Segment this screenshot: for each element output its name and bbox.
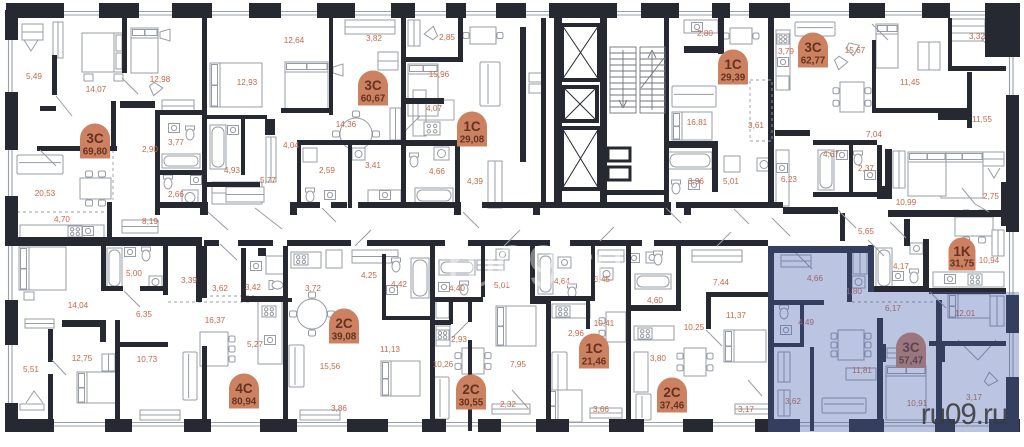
svg-text:10,94: 10,94 (979, 256, 1000, 265)
svg-text:4,25: 4,25 (361, 271, 377, 280)
svg-text:4,70: 4,70 (54, 215, 70, 224)
svg-text:6,23: 6,23 (781, 175, 797, 184)
svg-text:3,96: 3,96 (688, 177, 704, 186)
svg-text:ru09.ru: ru09.ru (447, 234, 624, 299)
svg-text:21,46: 21,46 (582, 356, 607, 367)
svg-text:12,93: 12,93 (237, 78, 258, 87)
svg-text:2,75: 2,75 (983, 192, 999, 201)
svg-text:16,81: 16,81 (687, 118, 708, 127)
svg-text:6,35: 6,35 (136, 310, 152, 319)
svg-text:3,80: 3,80 (650, 354, 666, 363)
svg-text:11,13: 11,13 (380, 345, 400, 354)
svg-text:80,94: 80,94 (232, 396, 257, 407)
svg-text:4C: 4C (235, 381, 253, 396)
svg-text:4,60: 4,60 (647, 296, 663, 305)
svg-text:11,37: 11,37 (726, 311, 746, 320)
svg-text:2,37: 2,37 (858, 164, 874, 173)
svg-text:31,75: 31,75 (950, 259, 975, 270)
svg-text:3C: 3C (86, 131, 104, 146)
svg-text:15,67: 15,67 (845, 46, 866, 55)
svg-text:5,27: 5,27 (247, 340, 263, 349)
svg-text:4,66: 4,66 (429, 167, 445, 176)
svg-text:3,61: 3,61 (748, 121, 764, 130)
svg-text:4,42: 4,42 (391, 280, 407, 289)
svg-text:2C: 2C (462, 382, 480, 397)
svg-text:2,90: 2,90 (142, 145, 158, 154)
svg-text:3,17: 3,17 (738, 405, 754, 414)
svg-text:7,04: 7,04 (866, 130, 882, 139)
svg-text:1C: 1C (585, 341, 603, 356)
svg-text:20,53: 20,53 (35, 189, 56, 198)
svg-text:16,37: 16,37 (205, 316, 226, 325)
svg-text:39,08: 39,08 (332, 331, 357, 342)
svg-text:3,66: 3,66 (593, 405, 609, 414)
svg-text:37,46: 37,46 (660, 400, 685, 411)
svg-text:10,41: 10,41 (594, 319, 615, 328)
svg-text:4,07: 4,07 (426, 104, 442, 113)
svg-text:ru09.ru: ru09.ru (921, 398, 1007, 431)
svg-text:5,49: 5,49 (26, 72, 42, 81)
svg-text:4,93: 4,93 (224, 166, 240, 175)
svg-text:12,98: 12,98 (150, 75, 171, 84)
svg-text:14,36: 14,36 (336, 120, 357, 129)
svg-text:7,95: 7,95 (510, 360, 526, 369)
svg-text:5,00: 5,00 (126, 269, 142, 278)
svg-text:3,82: 3,82 (366, 34, 382, 43)
svg-text:62,77: 62,77 (801, 55, 826, 66)
svg-text:60,67: 60,67 (361, 93, 386, 104)
svg-text:2,96: 2,96 (568, 329, 584, 338)
svg-text:11,55: 11,55 (972, 115, 992, 124)
svg-text:3,42: 3,42 (245, 283, 261, 292)
svg-text:30,55: 30,55 (459, 397, 484, 408)
svg-text:29,08: 29,08 (460, 134, 485, 145)
svg-text:3C: 3C (804, 40, 822, 55)
svg-text:2,85: 2,85 (439, 33, 455, 42)
svg-text:3,72: 3,72 (305, 284, 321, 293)
svg-text:4,17: 4,17 (893, 262, 909, 271)
svg-text:3,79: 3,79 (778, 47, 794, 56)
svg-text:3,39: 3,39 (181, 276, 197, 285)
svg-text:12,64: 12,64 (284, 36, 305, 45)
svg-text:14,07: 14,07 (86, 85, 107, 94)
svg-text:10,25: 10,25 (684, 323, 705, 332)
svg-text:5,01: 5,01 (723, 177, 739, 186)
svg-text:7,44: 7,44 (713, 278, 729, 287)
svg-text:1C: 1C (724, 57, 742, 72)
svg-text:3C: 3C (364, 78, 382, 93)
svg-text:4,04: 4,04 (283, 141, 299, 150)
svg-text:10,26: 10,26 (433, 360, 454, 369)
svg-text:5,51: 5,51 (23, 365, 39, 374)
svg-text:1K: 1K (953, 244, 971, 259)
svg-text:2,80: 2,80 (697, 29, 713, 38)
svg-text:4,39: 4,39 (467, 177, 483, 186)
svg-text:2,66: 2,66 (168, 190, 184, 199)
svg-text:5,77: 5,77 (260, 176, 276, 185)
svg-text:29,39: 29,39 (721, 72, 746, 83)
svg-text:3,86: 3,86 (331, 404, 347, 413)
svg-text:11,45: 11,45 (900, 78, 920, 87)
svg-text:2,93: 2,93 (451, 335, 467, 344)
svg-text:3,32: 3,32 (969, 32, 985, 41)
svg-text:2C: 2C (335, 316, 353, 331)
svg-text:8,19: 8,19 (142, 217, 158, 226)
svg-text:12,75: 12,75 (72, 354, 93, 363)
svg-text:5,65: 5,65 (858, 227, 874, 236)
svg-text:14,04: 14,04 (68, 301, 89, 310)
svg-text:4,67: 4,67 (823, 150, 839, 159)
svg-text:15,56: 15,56 (320, 362, 341, 371)
svg-text:3,77: 3,77 (168, 138, 184, 147)
svg-text:3,41: 3,41 (365, 161, 381, 170)
svg-text:15,96: 15,96 (429, 70, 450, 79)
svg-text:3,62: 3,62 (212, 284, 228, 293)
svg-text:10,99: 10,99 (896, 198, 917, 207)
svg-text:69,80: 69,80 (83, 146, 108, 157)
svg-text:2,32: 2,32 (500, 400, 516, 409)
svg-text:2,59: 2,59 (319, 166, 335, 175)
svg-text:10,73: 10,73 (137, 355, 158, 364)
svg-text:2C: 2C (663, 385, 681, 400)
svg-text:1C: 1C (463, 119, 481, 134)
